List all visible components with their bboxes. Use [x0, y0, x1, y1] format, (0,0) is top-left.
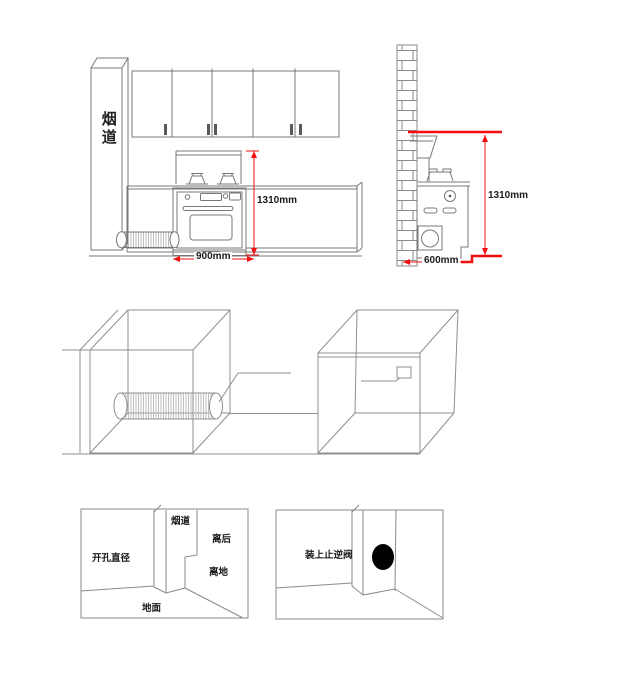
wall-cabinets [132, 69, 339, 138]
exhaust-hose [117, 232, 180, 248]
brick-wall [397, 45, 417, 266]
integrated-stove [173, 151, 246, 256]
flue-duct-label: 烟道 [100, 111, 116, 147]
detail-check-valve-label: 装上止逆阀 [305, 551, 353, 561]
cabinet-box-duct-view [62, 310, 420, 454]
cabinet-handles [164, 124, 302, 135]
elevation-width-dimension-label: 900mm [194, 252, 232, 263]
detail-hole-diameter-label: 开孔直径 [92, 554, 130, 564]
vent-outlet [397, 367, 411, 378]
detail-behind-clearance-label: 离后 [212, 535, 231, 545]
stove-side-view-drawing [397, 45, 470, 266]
check-valve-hole [372, 544, 394, 570]
duct-hose-cylinder [114, 393, 223, 419]
side-view-depth-dimension-label: 600mm [422, 256, 460, 267]
kitchen-elevation-drawing [89, 58, 362, 256]
detail-floor-clearance-label: 离地 [209, 568, 228, 578]
stove-installation-diagram: 烟道 1310mm 900mm 1310mm 600mm 烟道 离后 开孔直径 … [0, 0, 640, 688]
check-valve-detail-panel [276, 505, 443, 619]
stove-body-profile [417, 169, 470, 258]
side-view-height-dimension-label: 1310mm [488, 191, 528, 202]
diagram-linework [0, 0, 640, 688]
elevation-height-dimension-label: 1310mm [257, 196, 297, 207]
detail-flue-label: 烟道 [171, 517, 190, 527]
flue-duct-column [91, 58, 128, 250]
cabinet-box-vent-view [318, 310, 458, 453]
detail-floor-label: 地面 [142, 604, 161, 614]
vent-leader-line [361, 378, 400, 382]
